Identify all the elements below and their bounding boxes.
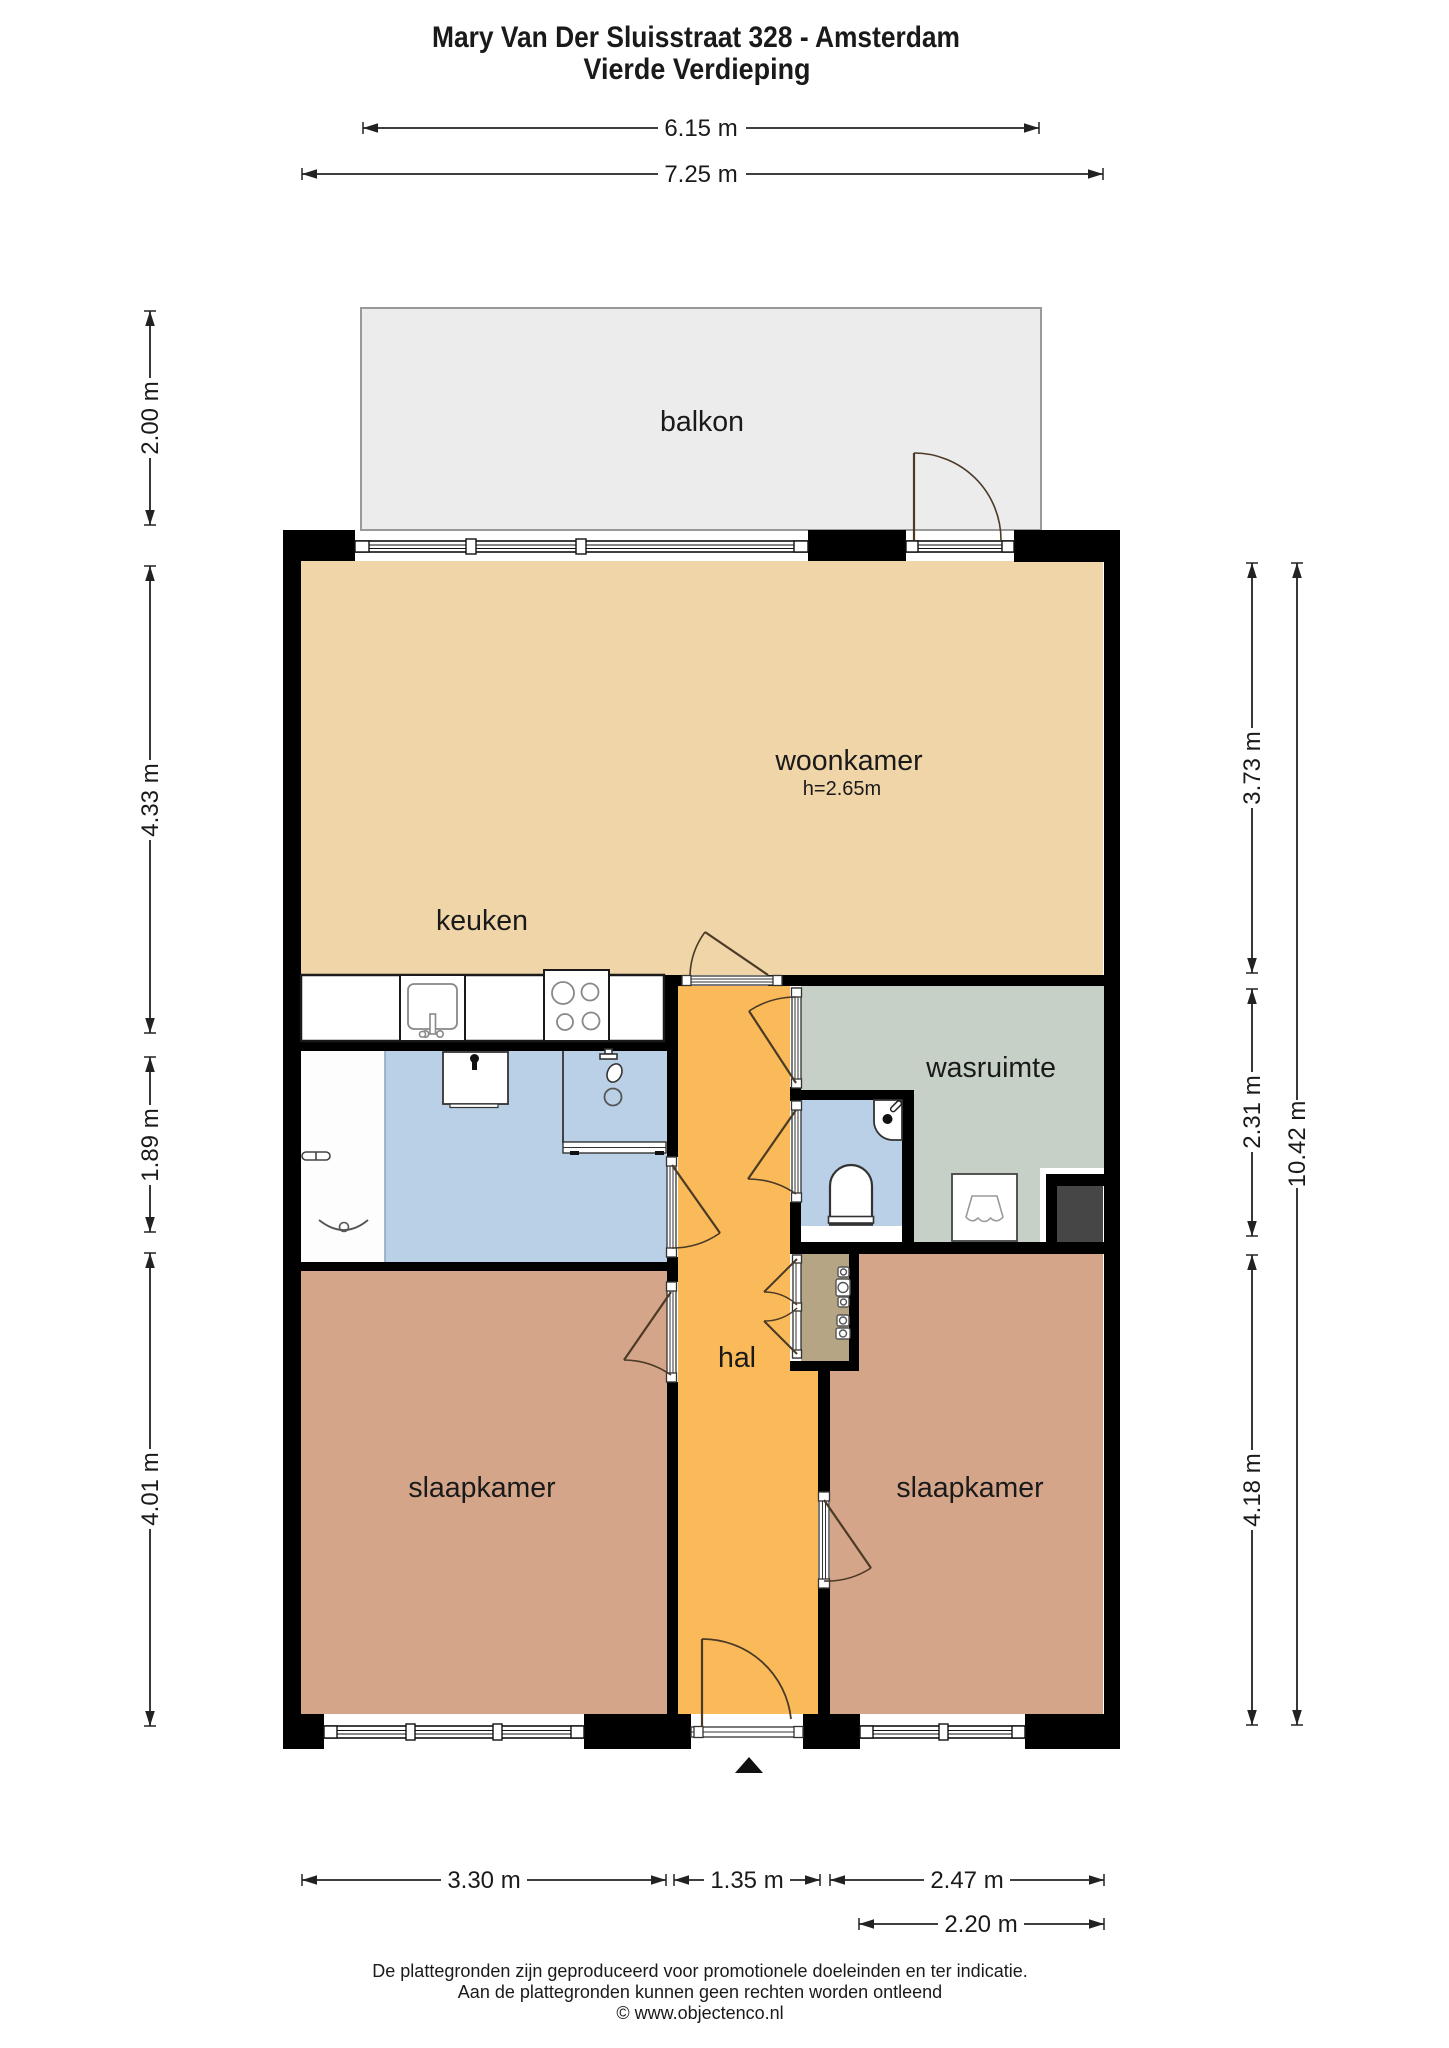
svg-text:6.15 m: 6.15 m — [664, 115, 737, 142]
svg-text:3.30 m: 3.30 m — [447, 1867, 520, 1894]
svg-text:4.01 m: 4.01 m — [137, 1452, 164, 1525]
svg-text:wasruimte: wasruimte — [925, 1052, 1056, 1084]
svg-text:4.33 m: 4.33 m — [137, 763, 164, 836]
svg-text:h=2.65m: h=2.65m — [803, 778, 881, 800]
svg-text:slaapkamer: slaapkamer — [896, 1472, 1044, 1504]
svg-text:keuken: keuken — [436, 905, 528, 937]
svg-text:Vierde Verdieping: Vierde Verdieping — [584, 53, 811, 86]
svg-text:10.42 m: 10.42 m — [1284, 1101, 1311, 1188]
svg-text:Mary Van Der Sluisstraat 328 -: Mary Van Der Sluisstraat 328 - Amsterdam — [432, 21, 960, 54]
svg-text:woonkamer: woonkamer — [774, 745, 923, 777]
svg-text:2.31 m: 2.31 m — [1239, 1075, 1266, 1148]
svg-text:1.35 m: 1.35 m — [710, 1867, 783, 1894]
svg-text:2.20 m: 2.20 m — [944, 1911, 1017, 1938]
svg-text:2.47 m: 2.47 m — [930, 1867, 1003, 1894]
svg-text:7.25 m: 7.25 m — [664, 161, 737, 188]
svg-text:2.00 m: 2.00 m — [137, 381, 164, 454]
svg-text:balkon: balkon — [660, 406, 744, 438]
svg-text:4.18 m: 4.18 m — [1239, 1453, 1266, 1526]
svg-text:slaapkamer: slaapkamer — [408, 1472, 556, 1504]
svg-text:1.89 m: 1.89 m — [137, 1108, 164, 1181]
svg-text:Aan de plattegronden kunnen ge: Aan de plattegronden kunnen geen rechten… — [458, 1982, 942, 2002]
svg-text:3.73 m: 3.73 m — [1239, 731, 1266, 804]
svg-text:hal: hal — [718, 1342, 756, 1374]
svg-text:© www.objectenco.nl: © www.objectenco.nl — [616, 2003, 783, 2023]
svg-text:De plattegronden zijn geproduc: De plattegronden zijn geproduceerd voor … — [372, 1961, 1027, 1981]
